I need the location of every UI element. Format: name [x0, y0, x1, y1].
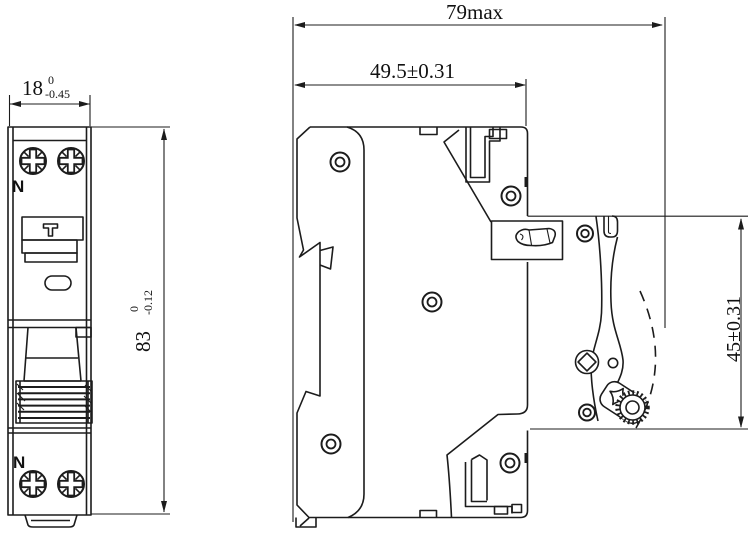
arrowhead-left — [294, 82, 305, 88]
drawing-canvas: 18 0 -0.45 N — [0, 0, 750, 533]
din-rail-profile — [297, 127, 528, 518]
bottom-notch — [420, 511, 437, 518]
rivet-icon — [322, 435, 341, 454]
terminal-screw-slot — [44, 224, 58, 236]
top-notch — [420, 127, 437, 135]
arrowhead-up — [738, 218, 744, 230]
lower-terminal-structure — [466, 453, 527, 514]
neutral-label-bottom: N — [13, 453, 25, 472]
technical-drawing: 18 0 -0.45 N — [0, 0, 750, 533]
din-clip-tab-side — [296, 518, 316, 528]
arrowhead-left — [10, 101, 21, 107]
rivet-icon — [577, 226, 593, 242]
dim-height-upper-tol: 0 — [127, 306, 141, 312]
upper-terminal-structure — [444, 127, 526, 222]
dim-rail-height: 45±0.31 — [723, 296, 745, 362]
rail-stop-nub — [320, 247, 333, 269]
front-body: N — [8, 127, 92, 527]
top-terminal-clamp — [22, 217, 83, 262]
side-body — [296, 127, 748, 527]
dim-overall-depth: 79max — [446, 0, 504, 24]
arrowhead-right — [79, 101, 90, 107]
knurled-knob — [597, 378, 651, 427]
arrowhead-left — [294, 22, 305, 28]
front-width-dimension: 18 0 -0.45 — [10, 73, 91, 126]
dim-body-depth: 49.5±0.31 — [370, 59, 455, 83]
indicator-window — [45, 276, 71, 290]
side-view: 79max 49.5±0.31 — [293, 0, 748, 527]
dim-height-lower-tol: -0.12 — [141, 290, 155, 315]
side-overall-depth-dimension: 79max — [293, 0, 665, 522]
arrowhead-down — [161, 501, 167, 513]
rivet-icon — [502, 187, 521, 206]
toggle-handle — [16, 381, 92, 423]
arrowhead-right — [652, 22, 663, 28]
phillips-screw-icon — [58, 471, 84, 497]
phillips-screw-icon — [58, 148, 84, 174]
rivet-icon — [501, 454, 520, 473]
arrowhead-right — [515, 82, 526, 88]
rivet-icon — [331, 153, 350, 172]
square-adjuster — [576, 351, 599, 374]
arrowhead-down — [738, 417, 744, 429]
phillips-screw-icon — [20, 148, 46, 174]
pivot-hole — [608, 358, 617, 367]
dim-width-lower-tol: -0.45 — [45, 87, 70, 101]
trip-indicator-window — [492, 221, 563, 260]
dim-width-nominal: 18 — [22, 76, 43, 100]
dim-height-nominal: 83 — [131, 331, 155, 352]
dim-width-upper-tol: 0 — [48, 73, 54, 87]
rivet-icon — [579, 405, 595, 421]
side-rail-height-dimension: 45±0.31 — [723, 218, 745, 428]
rivet-icon — [423, 293, 442, 312]
neutral-label-top: N — [12, 177, 24, 196]
front-height-dimension: 83 0 -0.12 — [91, 127, 170, 514]
phillips-screw-icon — [20, 471, 46, 497]
front-face-line — [347, 127, 364, 518]
arrowhead-up — [161, 129, 167, 141]
front-view: 18 0 -0.45 N — [8, 73, 170, 527]
side-body-depth-dimension: 49.5±0.31 — [294, 59, 526, 126]
rocker-recess — [24, 328, 91, 382]
